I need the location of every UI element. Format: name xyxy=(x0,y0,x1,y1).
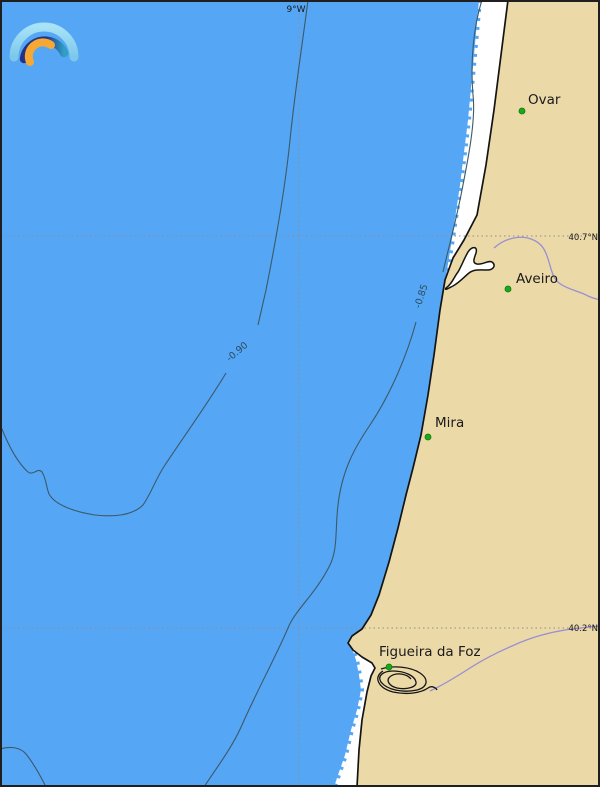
city-label-mira: Mira xyxy=(435,415,464,431)
city-marker-mira xyxy=(425,434,431,440)
city-label-ovar: Ovar xyxy=(528,92,561,108)
city-label-aveiro: Aveiro xyxy=(516,271,558,287)
city-marker-figueira xyxy=(386,664,392,670)
latitude-label-south: 40.2°N xyxy=(568,624,598,634)
city-label-figueira: Figueira da Foz xyxy=(379,644,481,660)
latitude-label-north: 40.7°N xyxy=(568,233,598,243)
city-marker-aveiro xyxy=(505,286,511,292)
map-viewport[interactable]: Ovar Aveiro Mira Figueira da Foz 9°W 40.… xyxy=(0,0,600,787)
longitude-label: 9°W xyxy=(286,5,305,15)
city-marker-ovar xyxy=(519,108,525,114)
